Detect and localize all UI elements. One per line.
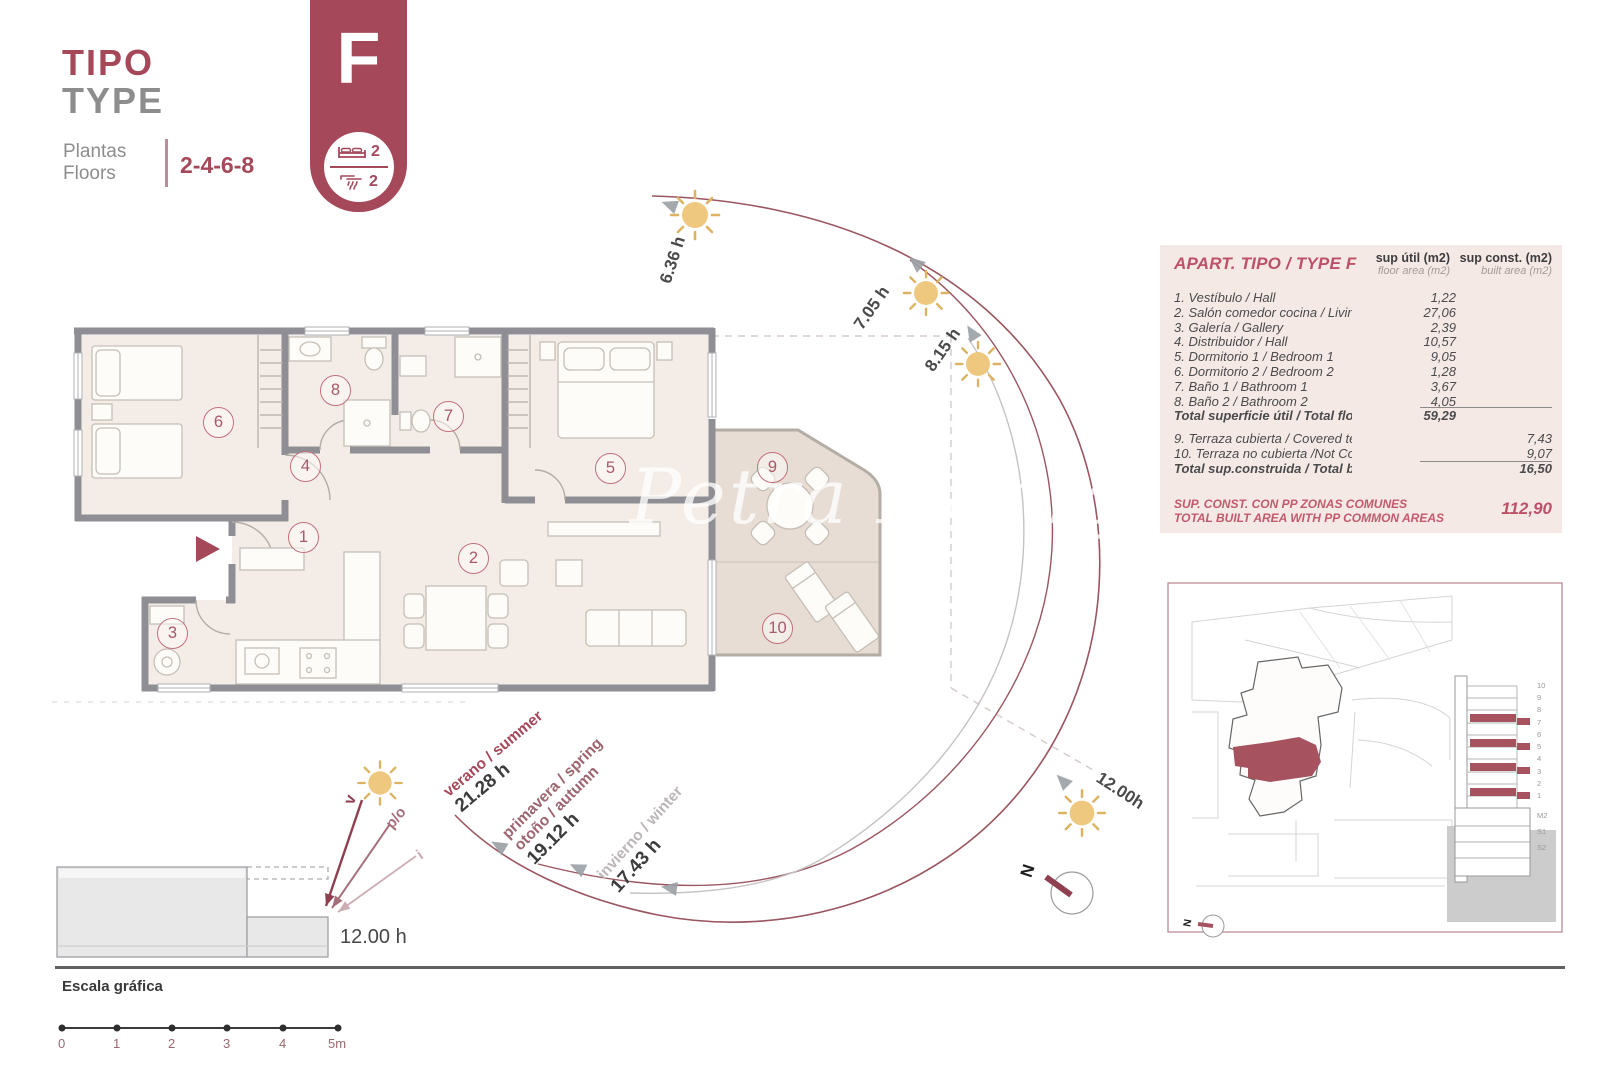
floors-label-en: Floors <box>63 163 116 185</box>
table-hairline <box>1420 461 1552 462</box>
scale-tick-0: 0 <box>58 1036 65 1051</box>
elevation-floor-label: S1 <box>1537 828 1546 836</box>
scale-bar <box>59 1025 342 1032</box>
row-floor-area: 9,05 <box>1352 349 1456 364</box>
room-number-10: 10 <box>762 613 793 644</box>
common-areas-line1: SUP. CONST. CON PP ZONAS COMUNES <box>1174 497 1444 511</box>
row-label: 8. Baño 2 / Bathroom 2 <box>1174 394 1352 409</box>
room-number-label: 10 <box>768 619 786 638</box>
elevation-floor-label: 6 <box>1537 731 1541 739</box>
room-number-3: 3 <box>157 618 188 649</box>
badge-room-counts: 2 2 <box>324 132 394 202</box>
common-areas-label: SUP. CONST. CON PP ZONAS COMUNES TOTAL B… <box>1174 497 1444 525</box>
section-step-block <box>247 917 328 957</box>
col-floor-subheader: floor area (m2) <box>1346 265 1450 277</box>
floors-label-es: Plantas <box>63 141 126 163</box>
table-row: 7. Baño 1 / Bathroom 13,67 <box>1174 379 1552 394</box>
elevation-floor-label: M2 <box>1537 812 1547 820</box>
scale-bar-title: Escala gráfica <box>62 978 163 995</box>
bed-icon <box>337 144 367 160</box>
room-number-label: 2 <box>469 549 478 568</box>
type-f-floorplan-sheet: Petra Honig TIPO TYPE Plantas Floors 2-4… <box>0 0 1620 1080</box>
section-building-block <box>57 867 247 957</box>
table-hairline <box>1420 407 1552 408</box>
total-built-label: Total sup.construida / Total built area <box>1174 461 1352 476</box>
common-areas-line2: TOTAL BUILT AREA WITH PP COMMON AREAS <box>1174 511 1444 525</box>
scale-tick-1: 1 <box>113 1036 120 1051</box>
row-floor-area: 1,28 <box>1352 364 1456 379</box>
total-floor-row: Total superficie útil / Total floor area… <box>1174 408 1552 423</box>
terrace-row: 10. Terraza no cubierta /Not Covered ter… <box>1174 446 1552 461</box>
row-label: 3. Galería / Gallery <box>1174 320 1352 335</box>
floors-value: 2-4-6-8 <box>180 152 254 179</box>
floor-plan <box>52 327 1093 770</box>
table-row: 2. Salón comedor cocina / Living dinning… <box>1174 305 1552 320</box>
elevation-floor-label: 9 <box>1537 694 1541 702</box>
room-number-label: 4 <box>301 457 310 476</box>
footer-divider <box>55 966 1565 969</box>
row-label: 6. Dormitorio 2 / Bedroom 2 <box>1174 364 1352 379</box>
row-label: 1. Vestíbulo / Hall <box>1174 290 1352 305</box>
entrance-arrow-icon <box>196 536 220 562</box>
bathrooms-count: 2 <box>369 173 378 191</box>
col-built-subheader: built area (m2) <box>1456 265 1552 277</box>
row-floor-area: 2,39 <box>1352 320 1456 335</box>
room-number-label: 7 <box>444 407 453 426</box>
elevation-floor-label: 4 <box>1537 755 1541 763</box>
total-built-value: 16,50 <box>1456 461 1552 476</box>
section-dashed-extension <box>247 867 328 879</box>
table-row: 5. Dormitorio 1 / Bedroom 19,05 <box>1174 349 1552 364</box>
sheet-title-es: TIPO <box>62 44 154 82</box>
row-floor-area: 1,22 <box>1352 290 1456 305</box>
row-floor-area: 27,06 <box>1352 305 1456 320</box>
room-number-5: 5 <box>595 453 626 484</box>
site-panel <box>1168 583 1562 937</box>
row-label: 4. Distribuidor / Hall <box>1174 334 1352 349</box>
total-floor-label: Total superficie útil / Total floor area <box>1174 408 1352 423</box>
elevation-floor-label: S2 <box>1537 844 1546 852</box>
elevation-floor-label: 2 <box>1537 780 1541 788</box>
terrace-row-value: 9,07 <box>1456 446 1552 461</box>
room-number-6: 6 <box>203 407 234 438</box>
col-built-header: sup const. (m2) <box>1456 251 1552 265</box>
table-rows: 1. Vestíbulo / Hall1,22 2. Salón comedor… <box>1174 290 1552 476</box>
scale-tick-4: 4 <box>279 1036 286 1051</box>
scale-tick-5m: 5m <box>328 1036 346 1051</box>
sun-icon <box>358 761 401 804</box>
sun-icon <box>1059 790 1105 836</box>
room-number-label: 9 <box>768 458 777 477</box>
section-noon-label: 12.00 h <box>340 926 407 949</box>
room-number-label: 6 <box>214 413 223 432</box>
type-letter: F <box>310 18 407 100</box>
table-row: 6. Dormitorio 2 / Bedroom 21,28 <box>1174 364 1552 379</box>
room-number-2: 2 <box>458 543 489 574</box>
common-areas-value: 112,90 <box>1501 499 1552 519</box>
table-title: APART. TIPO / TYPE F <box>1174 254 1357 274</box>
elevation-floor-label: 1 <box>1537 792 1541 800</box>
elevation-floor-label: 7 <box>1537 719 1541 727</box>
elevation-floor-label: 3 <box>1537 768 1541 776</box>
bedrooms-count: 2 <box>371 143 380 161</box>
room-number-9: 9 <box>757 452 788 483</box>
row-label: 2. Salón comedor cocina / Living dinning… <box>1174 305 1352 320</box>
room-number-4: 4 <box>290 451 321 482</box>
row-label: 5. Dormitorio 1 / Bedroom 1 <box>1174 349 1352 364</box>
table-row: 3. Galería / Gallery2,39 <box>1174 320 1552 335</box>
scale-tick-2: 2 <box>168 1036 175 1051</box>
sun-icon <box>671 191 719 239</box>
total-built-row: Total sup.construida / Total built area1… <box>1174 461 1552 476</box>
sheet-title-en: TYPE <box>62 82 164 120</box>
sun-icon <box>904 271 948 315</box>
table-column-headers: sup útil (m2) floor area (m2) sup const.… <box>1346 251 1552 277</box>
sun-icon <box>956 342 1000 386</box>
room-number-label: 3 <box>168 624 177 643</box>
elevation-floor-label: 8 <box>1537 706 1541 714</box>
terrace-row-value: 7,43 <box>1456 431 1552 446</box>
room-number-1: 1 <box>288 522 319 553</box>
terrace-row: 9. Terraza cubierta / Covered terrace7,4… <box>1174 431 1552 446</box>
elevation-floor-label: 5 <box>1537 743 1541 751</box>
north-compass <box>1046 872 1093 914</box>
table-row: 1. Vestíbulo / Hall1,22 <box>1174 290 1552 305</box>
room-number-7: 7 <box>433 401 464 432</box>
row-floor-area: 10,57 <box>1352 334 1456 349</box>
row-label: 7. Baño 1 / Bathroom 1 <box>1174 379 1352 394</box>
scale-tick-3: 3 <box>223 1036 230 1051</box>
terrace-row-label: 9. Terraza cubierta / Covered terrace <box>1174 431 1352 446</box>
type-badge: F 2 2 <box>310 0 407 212</box>
total-floor-value: 59,29 <box>1352 408 1456 423</box>
room-number-label: 8 <box>331 381 340 400</box>
shower-icon <box>339 174 365 191</box>
elevation-floor-label: 10 <box>1537 682 1545 690</box>
room-number-8: 8 <box>320 375 351 406</box>
watermark: Petra Honig <box>598 452 1158 541</box>
room-number-label: 1 <box>299 528 308 547</box>
col-floor-header: sup útil (m2) <box>1346 251 1450 265</box>
room-number-label: 5 <box>606 459 615 478</box>
area-table-panel: APART. TIPO / TYPE F sup útil (m2) floor… <box>1160 245 1562 533</box>
terrace-row-label: 10. Terraza no cubierta /Not Covered ter… <box>1174 446 1352 461</box>
floors-divider <box>165 139 168 187</box>
row-floor-area: 3,67 <box>1352 379 1456 394</box>
table-row: 4. Distribuidor / Hall10,57 <box>1174 334 1552 349</box>
